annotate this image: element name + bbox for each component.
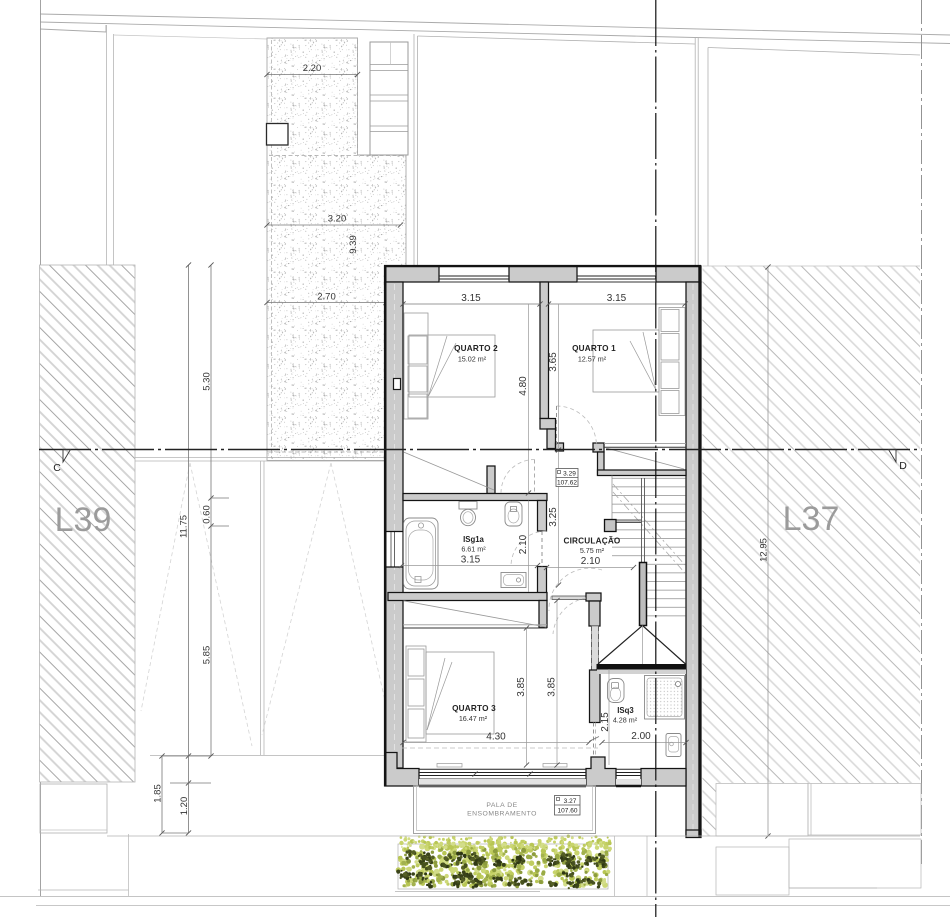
svg-text:107.62: 107.62 [557,480,577,487]
svg-text:3.15: 3.15 [607,293,627,304]
svg-text:C: C [53,462,61,474]
svg-text:15.02 m²: 15.02 m² [458,355,487,364]
svg-text:16.47 m²: 16.47 m² [459,714,488,723]
svg-text:3.29: 3.29 [563,471,576,478]
svg-text:L37: L37 [783,500,840,538]
svg-text:QUARTO 1: QUARTO 1 [572,344,616,353]
svg-text:5.85: 5.85 [202,646,213,665]
svg-text:3.15: 3.15 [461,555,481,566]
svg-text:3.20: 3.20 [328,214,347,225]
svg-text:2.10: 2.10 [581,556,601,567]
svg-text:2.15: 2.15 [600,712,611,732]
svg-text:2.20: 2.20 [303,63,322,74]
svg-text:2.10: 2.10 [518,534,529,554]
svg-text:5.75 m²: 5.75 m² [580,546,605,555]
svg-text:107.60: 107.60 [558,808,578,815]
svg-text:12.95: 12.95 [759,538,770,562]
svg-text:ISg1a: ISg1a [463,535,484,544]
svg-text:3.15: 3.15 [461,293,481,304]
svg-text:4.28 m²: 4.28 m² [613,716,638,725]
svg-text:12.57 m²: 12.57 m² [578,355,607,364]
svg-text:3.25: 3.25 [548,507,559,527]
svg-text:6.61 m²: 6.61 m² [461,545,486,554]
svg-text:ENSOMBRAMENTO: ENSOMBRAMENTO [467,811,537,818]
svg-text:1.20: 1.20 [179,797,190,816]
svg-text:ISq3: ISq3 [617,706,634,715]
svg-text:4.80: 4.80 [518,376,529,396]
svg-text:1.85: 1.85 [153,784,164,803]
svg-text:11.75: 11.75 [179,515,190,538]
svg-text:5.30: 5.30 [202,372,213,391]
svg-text:4.30: 4.30 [486,732,506,743]
svg-text:0.60: 0.60 [202,505,213,524]
svg-text:9.39: 9.39 [348,235,359,254]
svg-text:3.27: 3.27 [564,798,577,805]
svg-text:QUARTO 2: QUARTO 2 [454,344,498,353]
svg-text:3.65: 3.65 [548,352,559,372]
svg-text:L39: L39 [55,501,112,539]
svg-text:D: D [899,460,907,472]
svg-text:CIRCULAÇÃO: CIRCULAÇÃO [563,536,620,546]
svg-text:2.70: 2.70 [317,292,336,303]
svg-text:3.85: 3.85 [516,677,527,697]
svg-text:PALA DE: PALA DE [486,802,517,809]
svg-text:QUARTO 3: QUARTO 3 [452,704,496,713]
svg-text:3.85: 3.85 [547,677,558,697]
svg-text:2.00: 2.00 [631,731,651,742]
